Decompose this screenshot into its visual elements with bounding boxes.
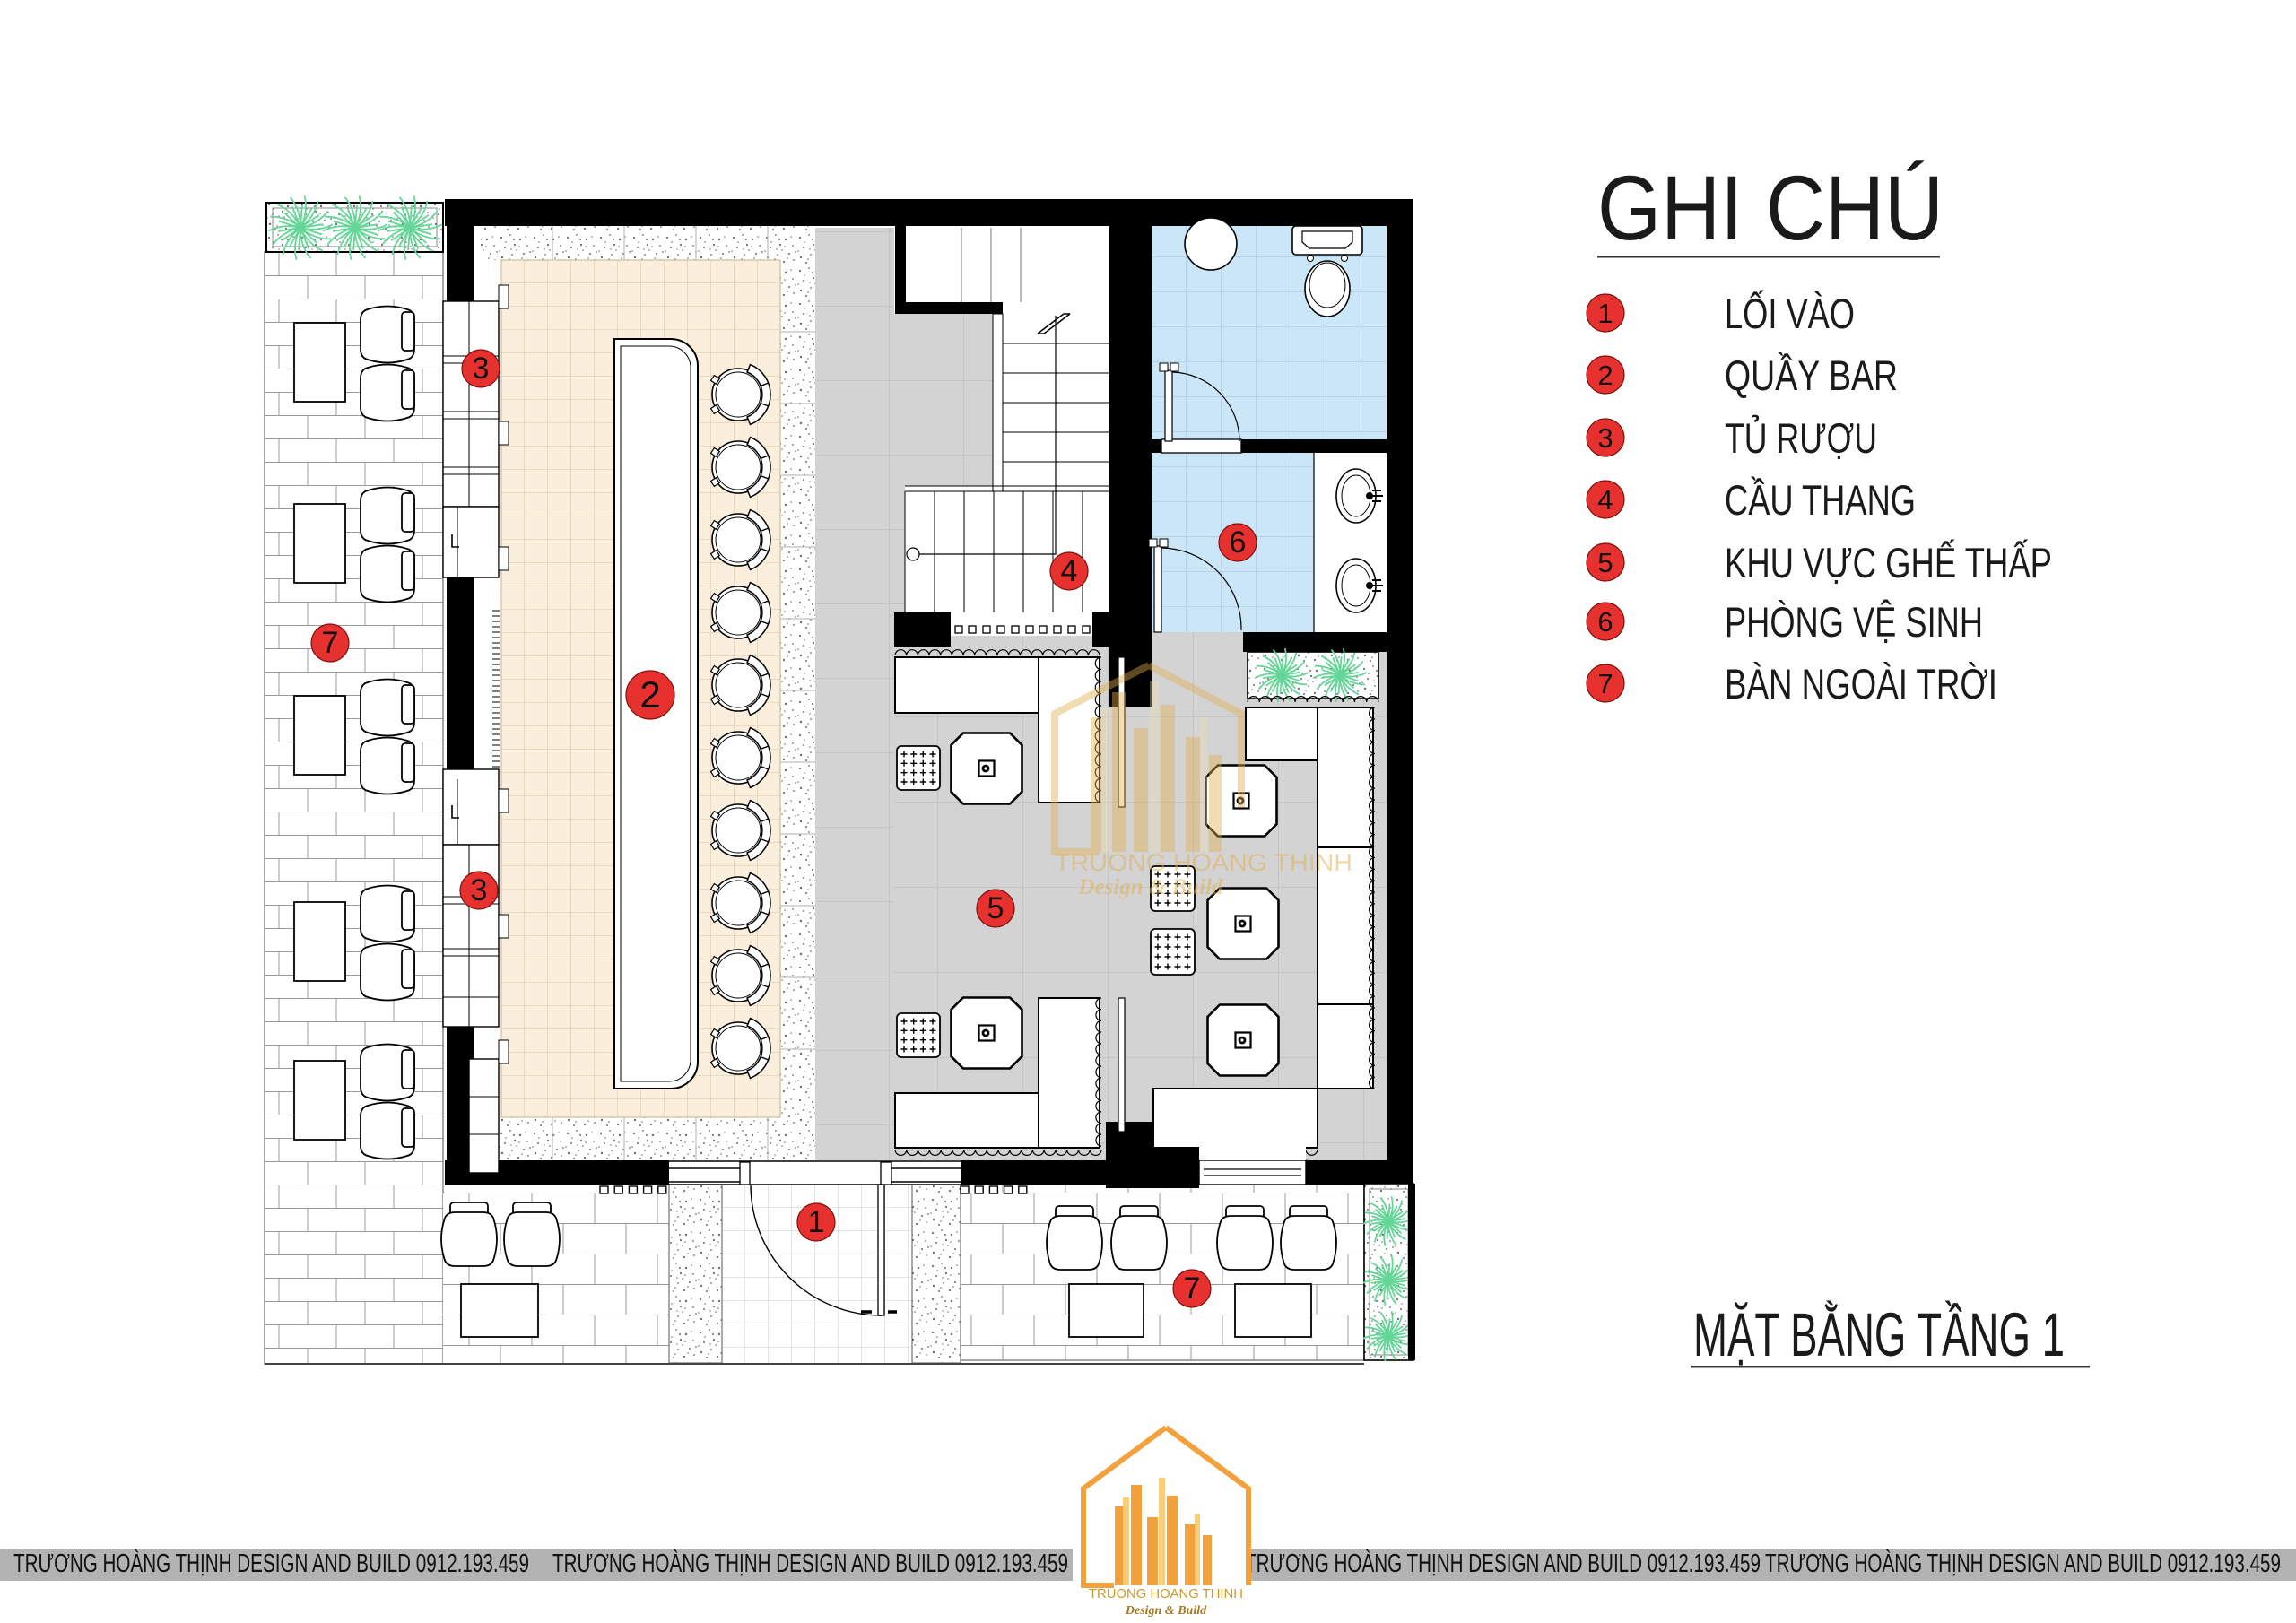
svg-text:KHU VỰC GHẾ THẤP: KHU VỰC GHẾ THẤP [1725, 539, 2052, 586]
svg-text:BÀN NGOÀI TRỜI: BÀN NGOÀI TRỜI [1725, 660, 1997, 707]
svg-text:3: 3 [1597, 422, 1613, 454]
svg-text:6: 6 [1230, 525, 1247, 560]
svg-text:7: 7 [1597, 668, 1613, 699]
svg-text:1: 1 [1597, 298, 1613, 329]
svg-text:Design & Build: Design & Build [1077, 875, 1223, 899]
svg-text:3: 3 [473, 352, 490, 386]
svg-text:TRƯƠNG HOÀNG THỊNH DESIGN AND: TRƯƠNG HOÀNG THỊNH DESIGN AND BUILD 0912… [552, 1549, 1068, 1578]
svg-text:2: 2 [1597, 360, 1613, 391]
svg-text:TRUONG HOANG THINH: TRUONG HOANG THINH [1089, 1586, 1243, 1601]
svg-text:5: 5 [1597, 547, 1613, 578]
svg-text:GHI CHÚ: GHI CHÚ [1597, 157, 1944, 259]
svg-text:TỦ RƯỢU: TỦ RƯỢU [1725, 414, 1877, 462]
svg-text:TRƯƠNG HOÀNG THỊNH DESIGN AND: TRƯƠNG HOÀNG THỊNH DESIGN AND BUILD 0912… [1245, 1549, 1761, 1578]
svg-text:MẶT BẰNG TẦNG 1: MẶT BẰNG TẦNG 1 [1693, 1300, 2065, 1369]
svg-text:4: 4 [1597, 484, 1613, 516]
svg-text:QUẦY BAR: QUẦY BAR [1725, 352, 1898, 399]
svg-text:TRƯƠNG HOÀNG THỊNH DESIGN AND: TRƯƠNG HOÀNG THỊNH DESIGN AND BUILD 0912… [13, 1549, 529, 1578]
svg-text:3: 3 [471, 873, 488, 907]
svg-text:1: 1 [808, 1205, 825, 1239]
svg-text:CẦU THANG: CẦU THANG [1725, 476, 1916, 524]
svg-text:TRƯƠNG HOÀNG THỊNH DESIGN AND: TRƯƠNG HOÀNG THỊNH DESIGN AND BUILD 0912… [1765, 1549, 2281, 1578]
svg-text:7: 7 [322, 626, 339, 660]
svg-text:TRUONG HOANG THINH: TRUONG HOANG THINH [1055, 849, 1352, 876]
svg-text:LỐI VÀO: LỐI VÀO [1725, 290, 1855, 337]
svg-text:5: 5 [987, 891, 1004, 925]
svg-text:6: 6 [1597, 606, 1613, 638]
svg-text:Design & Build: Design & Build [1125, 1604, 1207, 1618]
svg-text:7: 7 [1184, 1271, 1201, 1306]
svg-text:PHÒNG VỆ SINH: PHÒNG VỆ SINH [1725, 598, 1983, 646]
svg-text:4: 4 [1061, 554, 1078, 588]
svg-text:2: 2 [639, 673, 660, 716]
